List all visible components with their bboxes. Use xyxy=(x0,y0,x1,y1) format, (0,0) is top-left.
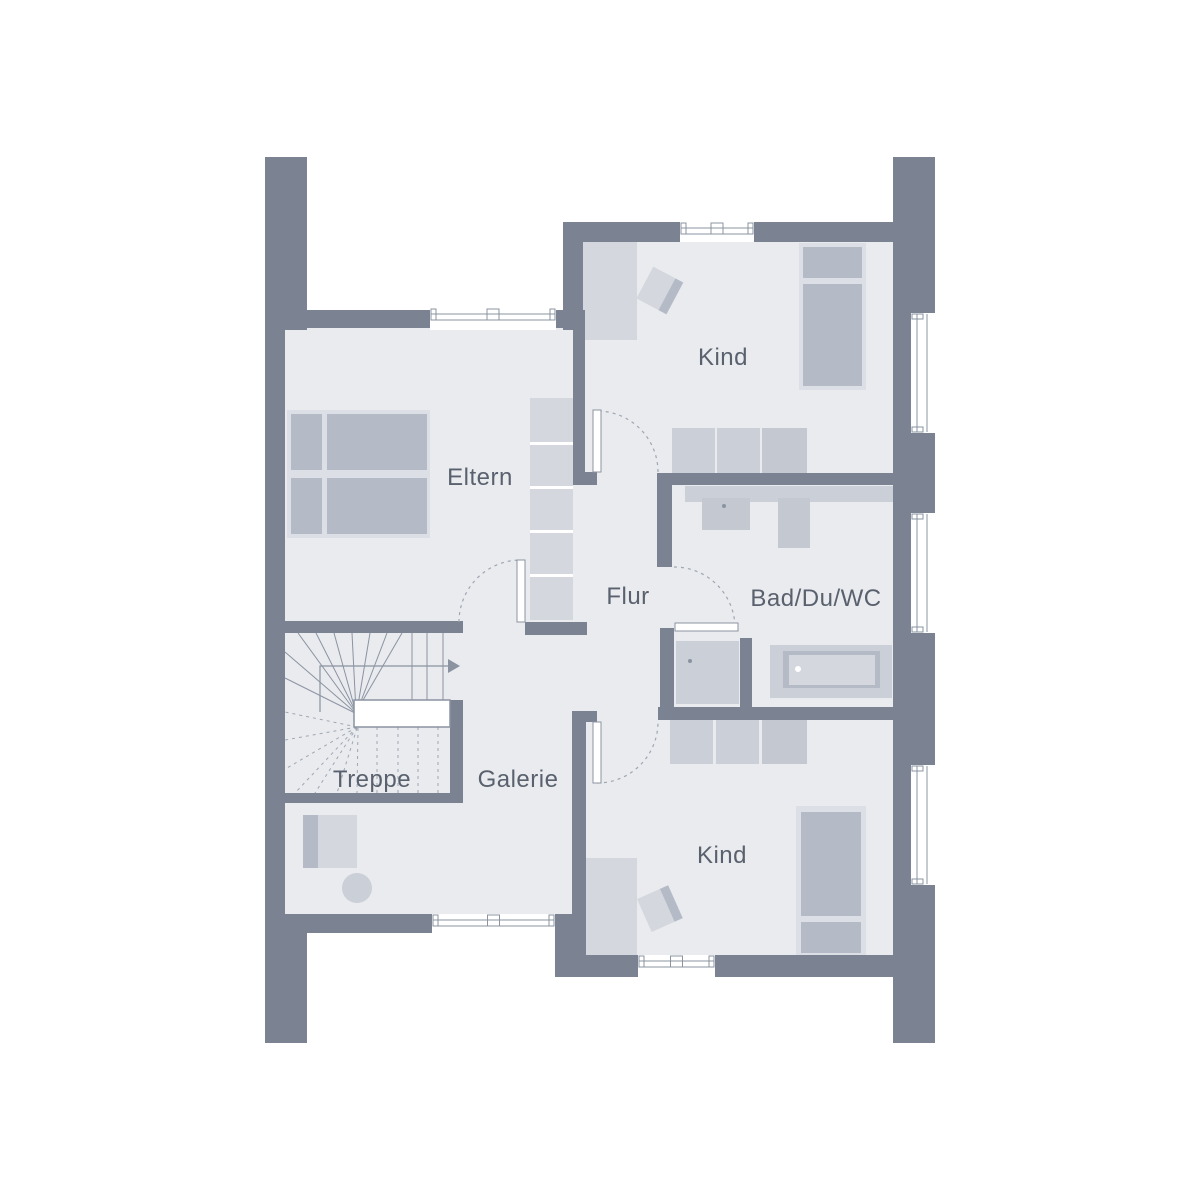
window-opening xyxy=(911,313,935,433)
wall-segment xyxy=(573,328,585,472)
wall-segment xyxy=(563,222,583,330)
wall-segment xyxy=(265,310,285,933)
furniture-mid2 xyxy=(702,498,750,530)
room-label-galerie: Galerie xyxy=(478,766,559,793)
window xyxy=(680,222,754,242)
fixture-dot xyxy=(795,666,801,672)
wall-segment xyxy=(525,622,587,635)
wall-segment xyxy=(555,914,586,977)
furniture-mid2 xyxy=(762,428,807,473)
wall-segment xyxy=(660,628,674,707)
wall-segment xyxy=(285,793,463,803)
furniture-cell xyxy=(530,398,573,620)
furniture-divider xyxy=(530,442,573,445)
door-leaf xyxy=(593,722,601,783)
fixture-dot xyxy=(688,659,692,663)
wall-segment xyxy=(740,638,752,707)
furniture-dark xyxy=(803,247,862,278)
room-label-flur: Flur xyxy=(606,583,649,610)
furniture-divider xyxy=(530,530,573,533)
window-opening xyxy=(911,765,935,885)
window xyxy=(911,313,935,433)
wall-segment xyxy=(754,222,893,242)
furniture-dark xyxy=(801,812,861,916)
furniture-cell xyxy=(318,815,357,868)
furniture-dark xyxy=(803,284,862,386)
wall-segment xyxy=(285,310,430,328)
wall-segment xyxy=(572,711,597,722)
stool xyxy=(342,873,372,903)
window-opening xyxy=(680,222,754,242)
room-label-kind-bottom: Kind xyxy=(697,842,747,869)
window xyxy=(911,513,935,633)
room-label-bad: Bad/Du/WC xyxy=(750,585,881,612)
window xyxy=(911,765,935,885)
wall-segment xyxy=(285,621,463,633)
stair-landing xyxy=(354,700,450,727)
furniture-mid xyxy=(717,428,760,473)
wall-segment xyxy=(265,157,307,330)
wall-segment xyxy=(450,700,463,803)
furniture-mid2 xyxy=(762,720,807,764)
window xyxy=(430,308,556,330)
room-label-kind-top: Kind xyxy=(698,344,748,371)
furniture-mid xyxy=(670,720,713,764)
wall-segment xyxy=(573,472,597,485)
furniture-dark xyxy=(327,414,427,470)
furniture-mid xyxy=(716,720,759,764)
window xyxy=(638,955,715,977)
furniture-mid xyxy=(676,641,739,704)
furniture-mid xyxy=(672,428,715,473)
furniture-mid2 xyxy=(778,498,810,548)
furniture-cell xyxy=(586,858,637,955)
furniture-cell xyxy=(583,242,637,340)
furniture-dark xyxy=(291,478,322,534)
room-label-treppe: Treppe xyxy=(333,766,411,793)
wall-segment xyxy=(715,955,893,977)
wall-segment xyxy=(586,955,638,977)
wall-segment xyxy=(265,914,432,933)
room-label-eltern: Eltern xyxy=(447,464,513,491)
door-leaf xyxy=(675,623,738,631)
furniture-dark xyxy=(303,815,318,868)
wall-segment xyxy=(265,914,307,1043)
window xyxy=(432,914,555,933)
furniture-divider xyxy=(530,486,573,489)
door-leaf xyxy=(593,410,601,472)
floor-plan: ElternKindFlurBad/Du/WCTreppeGalerieKind xyxy=(0,0,1200,1200)
window-opening xyxy=(430,308,556,330)
wall-segment xyxy=(583,222,680,242)
furniture-divider xyxy=(530,574,573,577)
furniture-dark xyxy=(291,414,322,470)
window-opening xyxy=(911,513,935,633)
furniture-dark xyxy=(801,922,861,953)
wall-segment xyxy=(657,473,893,485)
wall-segment xyxy=(657,473,672,567)
window-opening xyxy=(432,914,555,933)
window-opening xyxy=(638,955,715,977)
fixture-dot xyxy=(722,504,726,508)
wall-segment xyxy=(658,707,893,720)
floorplan-canvas: ElternKindFlurBad/Du/WCTreppeGalerieKind xyxy=(0,0,1200,1200)
furniture-dark xyxy=(327,478,427,534)
furniture-cell xyxy=(789,655,875,685)
door-leaf xyxy=(517,560,525,622)
